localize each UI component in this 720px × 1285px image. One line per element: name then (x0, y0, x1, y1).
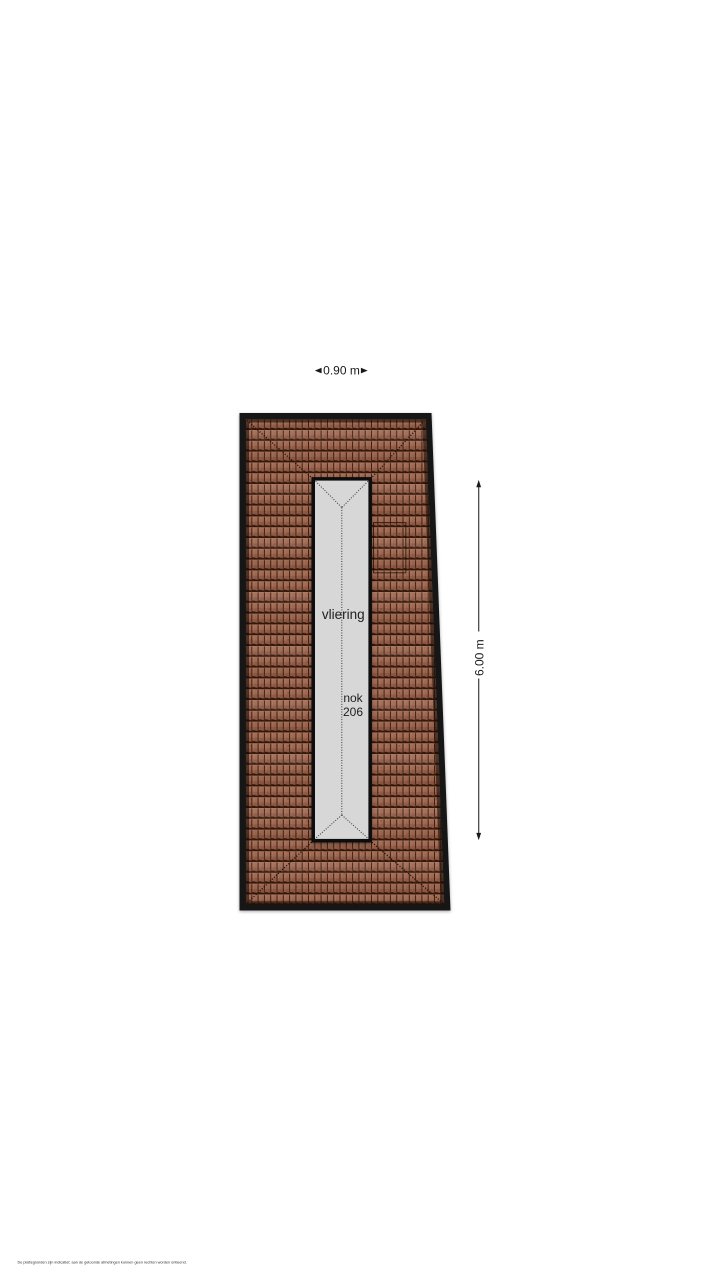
svg-text:vliering: vliering (322, 607, 365, 622)
svg-text:nok: nok (343, 691, 363, 705)
svg-text:0.90 m: 0.90 m (323, 364, 360, 378)
svg-text:De plattegronden zijn indicati: De plattegronden zijn indicatief, aan de… (18, 1261, 187, 1265)
svg-text:206: 206 (343, 705, 363, 719)
svg-text:6.00 m: 6.00 m (473, 639, 487, 676)
